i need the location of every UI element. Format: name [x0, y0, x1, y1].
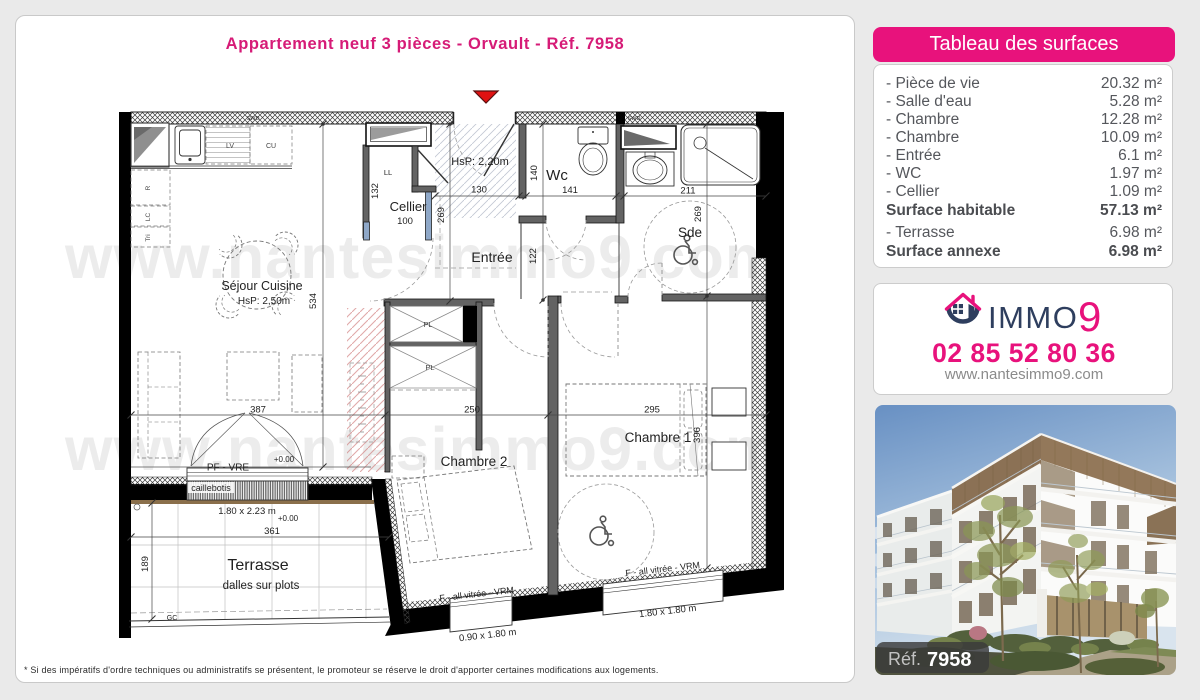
svg-text:Sde: Sde	[678, 225, 702, 240]
svg-text:PF - VRE: PF - VRE	[207, 463, 250, 474]
svg-text:LC: LC	[145, 213, 152, 222]
svg-text:HsP: 2,50m: HsP: 2,50m	[238, 296, 290, 307]
svg-text:130: 130	[471, 185, 487, 196]
svg-text:Wc: Wc	[546, 167, 568, 184]
svg-text:269: 269	[693, 206, 704, 222]
svg-text:100: 100	[397, 216, 413, 227]
svg-text:361: 361	[264, 526, 280, 537]
svg-text:140: 140	[529, 165, 540, 181]
svg-text:295: 295	[644, 405, 660, 416]
svg-text:122: 122	[528, 248, 539, 264]
svg-text:HsP: 2,20m: HsP: 2,20m	[451, 156, 508, 168]
svg-text:PL: PL	[425, 363, 434, 372]
svg-text:caillebotis: caillebotis	[191, 483, 231, 493]
svg-text:+0.00: +0.00	[278, 514, 299, 523]
svg-text:7958: 7958	[927, 649, 972, 671]
svg-text:9: 9	[1078, 293, 1101, 339]
svg-text:LV: LV	[226, 143, 234, 150]
svg-text:211: 211	[680, 186, 695, 197]
svg-text:132: 132	[370, 183, 381, 199]
svg-text:250: 250	[464, 405, 480, 416]
svg-text:1.80 x 2.23 m: 1.80 x 2.23 m	[218, 506, 276, 517]
svg-text:CU: CU	[266, 143, 276, 150]
svg-text:GC: GC	[167, 615, 178, 622]
svg-text:189: 189	[140, 556, 151, 572]
svg-text:Séjour Cuisine: Séjour Cuisine	[221, 279, 302, 293]
svg-text:IMMO: IMMO	[988, 300, 1078, 335]
svg-text:+0.00: +0.00	[274, 455, 295, 464]
svg-text:Terrasse: Terrasse	[227, 557, 288, 574]
svg-text:269: 269	[436, 207, 447, 223]
svg-text:396: 396	[692, 427, 703, 443]
svg-text:534: 534	[308, 293, 319, 309]
svg-text:Tri: Tri	[145, 234, 152, 241]
svg-text:dalles sur plots: dalles sur plots	[223, 580, 300, 592]
svg-text:Chambre 2: Chambre 2	[441, 454, 508, 469]
svg-text:LL: LL	[384, 168, 392, 177]
svg-text:Chambre 1: Chambre 1	[625, 430, 692, 445]
svg-text:387: 387	[250, 405, 266, 416]
svg-text:R: R	[145, 185, 152, 190]
svg-text:Entrée: Entrée	[471, 249, 512, 265]
svg-text:SWD: SWD	[628, 116, 641, 122]
svg-text:PL: PL	[423, 320, 432, 329]
svg-text:Cellier: Cellier	[390, 199, 428, 214]
svg-text:SWD: SWD	[247, 116, 260, 122]
svg-text:141: 141	[562, 185, 578, 196]
svg-text:Réf.: Réf.	[888, 649, 921, 669]
